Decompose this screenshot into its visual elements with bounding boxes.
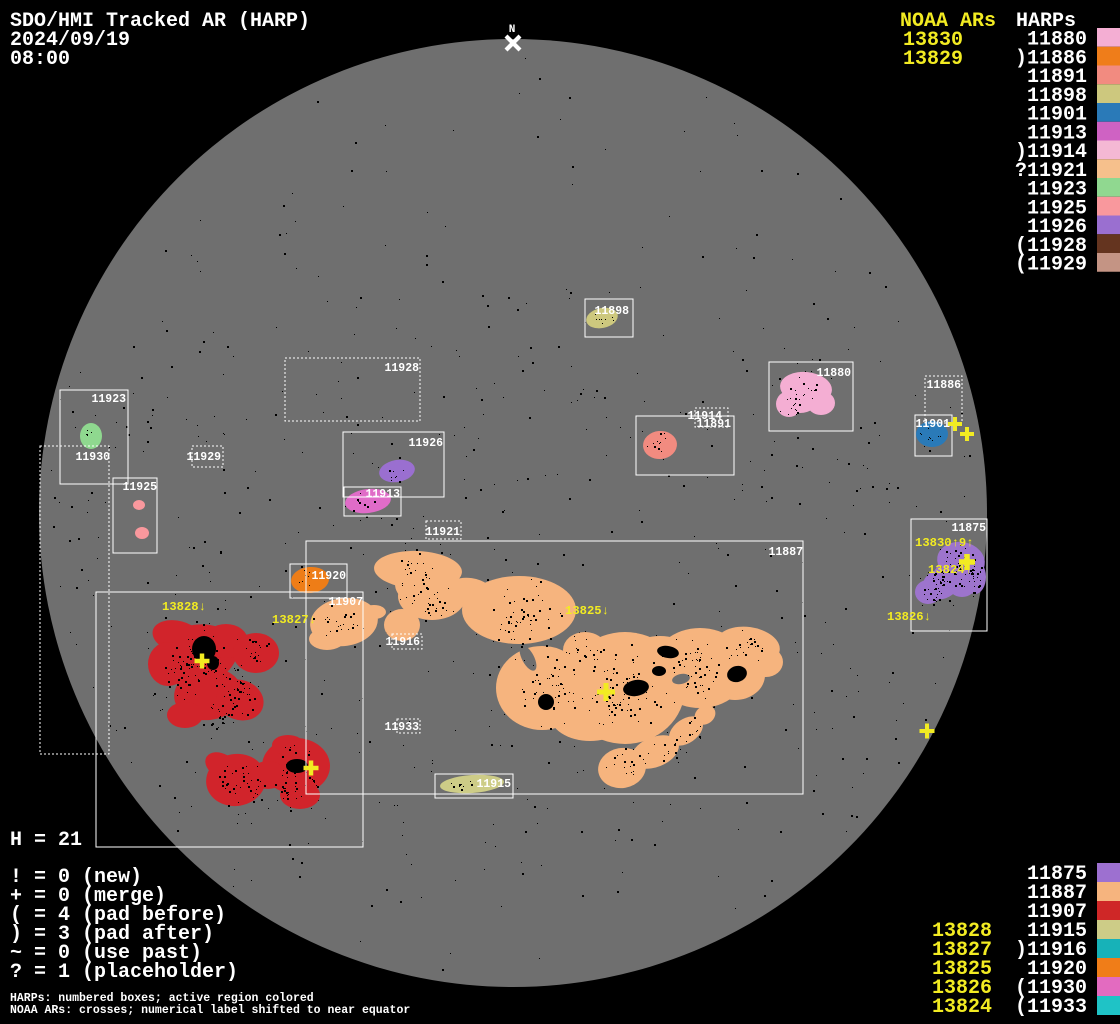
svg-text:11928: 11928 <box>384 362 419 375</box>
svg-text:13824: 13824 <box>932 996 992 1019</box>
svg-text:(11929: (11929 <box>1015 254 1087 277</box>
svg-text:11921: 11921 <box>425 526 460 539</box>
svg-text:11933: 11933 <box>384 721 419 734</box>
svg-text:13826↓: 13826↓ <box>887 610 931 624</box>
svg-text:11880: 11880 <box>816 367 851 380</box>
svg-text:11930: 11930 <box>75 451 110 464</box>
svg-text:08:00: 08:00 <box>10 48 70 71</box>
svg-text:11901: 11901 <box>915 418 950 431</box>
svg-text:11907: 11907 <box>328 596 363 609</box>
svg-text:13828↓: 13828↓ <box>162 600 206 614</box>
svg-text:11898: 11898 <box>594 305 629 318</box>
svg-text:11925: 11925 <box>122 481 157 494</box>
svg-text:13830↑9↑: 13830↑9↑ <box>915 536 974 550</box>
svg-text:11887: 11887 <box>768 546 803 559</box>
svg-text:11875: 11875 <box>951 522 986 535</box>
svg-text:11923: 11923 <box>91 393 126 406</box>
svg-text:13824↑: 13824↑ <box>928 563 972 577</box>
svg-text:11886: 11886 <box>926 379 961 392</box>
svg-text:N: N <box>509 24 516 36</box>
svg-text:11915: 11915 <box>476 778 511 791</box>
svg-text:11920: 11920 <box>311 570 346 583</box>
svg-text:(11933: (11933 <box>1015 996 1087 1019</box>
svg-text:H = 21: H = 21 <box>10 829 82 852</box>
svg-text:11929: 11929 <box>186 451 221 464</box>
svg-text:11916: 11916 <box>385 636 420 649</box>
svg-text:11913: 11913 <box>365 488 400 501</box>
svg-text:11891: 11891 <box>696 418 731 431</box>
svg-text:11926: 11926 <box>408 437 443 450</box>
svg-text:NOAA ARs: crosses; numerical l: NOAA ARs: crosses; numerical label shift… <box>10 1004 410 1017</box>
svg-text:13825↓: 13825↓ <box>565 604 609 618</box>
svg-text:13827↓: 13827↓ <box>272 613 316 627</box>
svg-text:? = 1 (placeholder): ? = 1 (placeholder) <box>10 961 238 984</box>
svg-text:13829: 13829 <box>903 48 963 71</box>
